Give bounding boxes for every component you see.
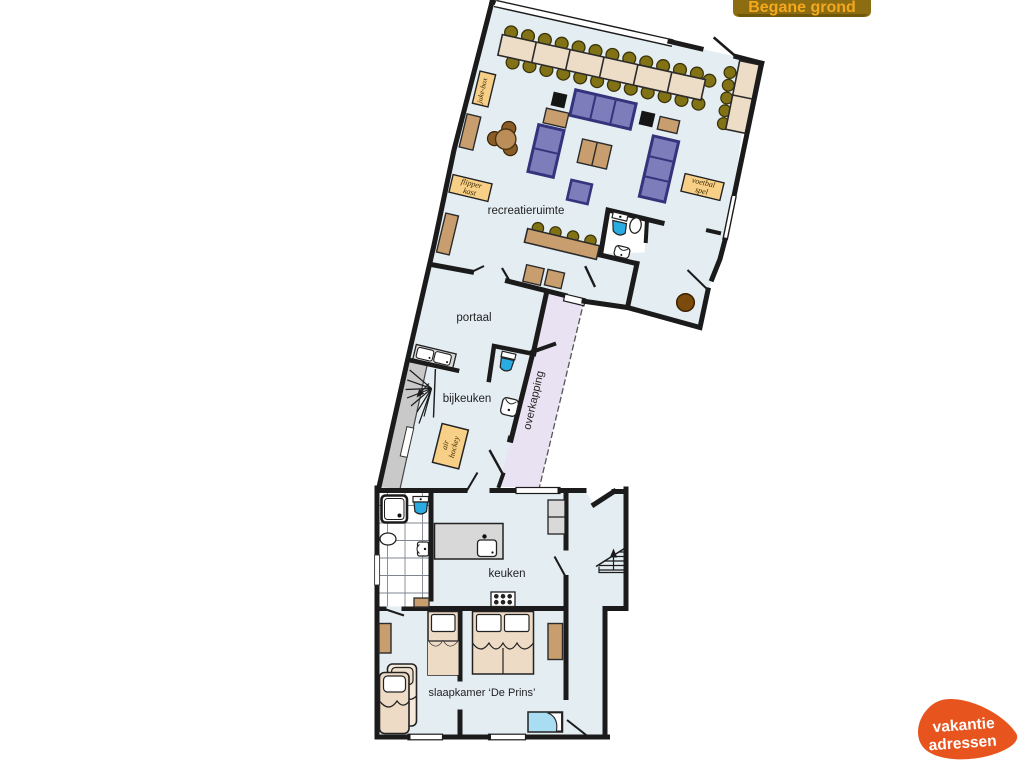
svg-text:keuken: keuken: [488, 568, 525, 580]
svg-text:slaapkamer ‘De Prins’: slaapkamer ‘De Prins’: [429, 687, 536, 699]
svg-text:recreatieruimte: recreatieruimte: [488, 205, 565, 217]
svg-text:bijkeuken: bijkeuken: [443, 393, 492, 405]
svg-text:Begane grond: Begane grond: [748, 0, 856, 16]
svg-text:portaal: portaal: [456, 312, 491, 324]
